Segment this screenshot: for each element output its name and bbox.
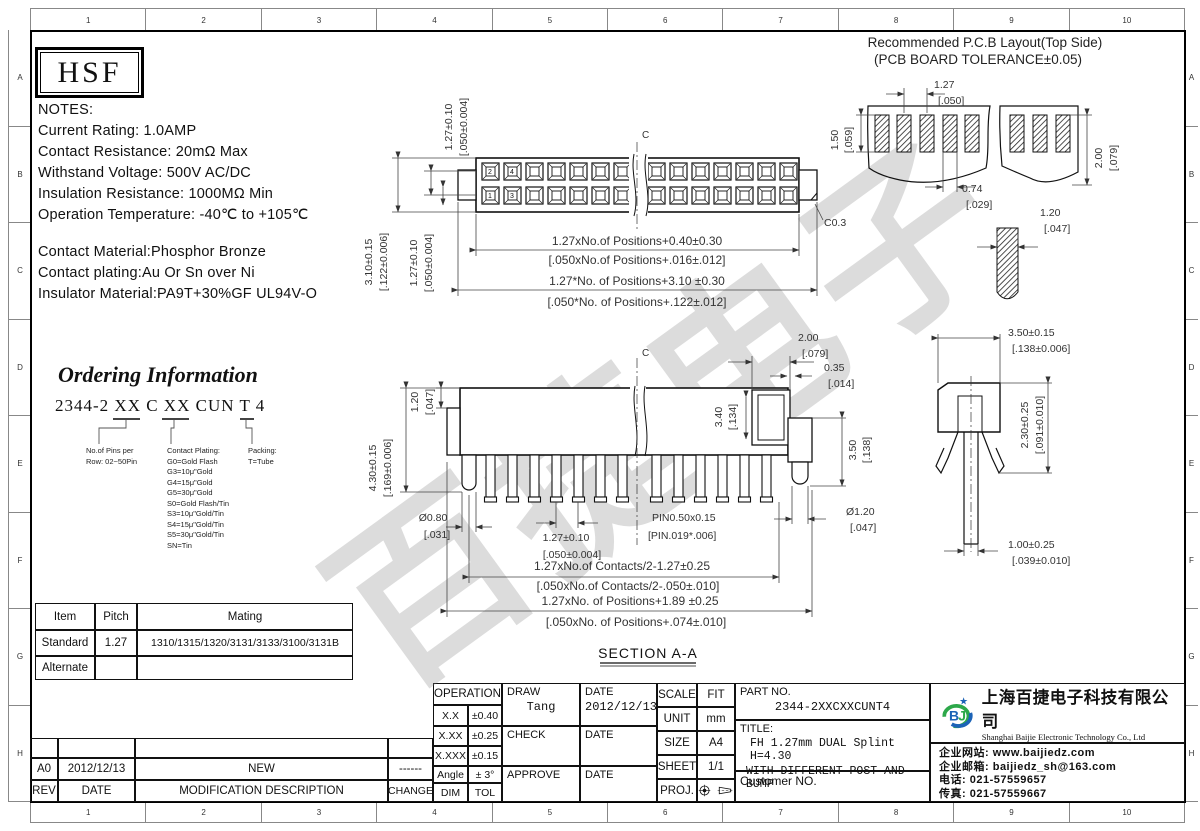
- unit-value: mm: [697, 707, 735, 731]
- ruler-left: ABCDEFGH: [8, 30, 31, 802]
- mating-pitch-value: 1.27: [95, 630, 137, 656]
- rev-desc-value: NEW: [135, 758, 388, 780]
- rev-header: REV: [30, 780, 58, 802]
- scale-label: SCALE: [657, 683, 697, 707]
- approve-label: APPROVE: [507, 769, 560, 781]
- ruler-label: 8: [839, 9, 954, 31]
- ruler-label: A: [1185, 30, 1198, 127]
- ordering-plating-list: Contact Plating: G0=Gold Flash G3=10μ"Go…: [167, 446, 257, 551]
- ruler-label: D: [9, 320, 31, 417]
- ruler-label: 6: [608, 9, 723, 31]
- check-cell: CHECK: [502, 726, 580, 766]
- ruler-label: 5: [493, 802, 608, 822]
- plating-option: G0=Gold Flash: [167, 457, 257, 468]
- mating-header-mating: Mating: [137, 603, 353, 630]
- tol-val: ±0.15: [468, 746, 502, 766]
- hsf-logo: HSF: [35, 47, 144, 98]
- company-contact: 企业网站: www.baijiedz.com 企业邮箱: baijiedz_sh…: [930, 743, 1185, 802]
- note-line: Operation Temperature: -40℃ to +105℃: [38, 205, 378, 226]
- plating-option: S4=15μ"Gold/Tin: [167, 520, 257, 531]
- ruler-label: H: [9, 706, 31, 803]
- company-header: ★ B J 上海百捷电子科技有限公司 Shanghai Baijie Elect…: [930, 683, 1185, 743]
- ruler-label: G: [1185, 609, 1198, 706]
- customer-no-cell: Customer NO.: [735, 771, 930, 802]
- operation-header: OPERATION: [433, 683, 502, 705]
- ordering-title: Ordering Information: [58, 362, 258, 388]
- rev-empty: [388, 738, 433, 758]
- company-name-cn: 上海百捷电子科技有限公司: [982, 684, 1180, 732]
- date-label: DATE: [585, 769, 614, 781]
- plating-option: G5=30μ"Gold: [167, 488, 257, 499]
- plating-heading: Contact Plating:: [167, 446, 257, 457]
- tol-val: ± 3°: [468, 766, 502, 783]
- plating-option: G3=10μ"Gold: [167, 467, 257, 478]
- plating-option: S0=Gold Flash/Tin: [167, 499, 257, 510]
- ruler-label: A: [9, 30, 31, 127]
- proj-symbol-cell: [697, 779, 735, 802]
- rev-empty: [135, 738, 388, 758]
- hsf-logo-border: [40, 52, 139, 93]
- ruler-label: F: [1185, 513, 1198, 610]
- ruler-label: 4: [377, 9, 492, 31]
- sheet-label: SHEET: [657, 755, 697, 779]
- ruler-label: F: [9, 513, 31, 610]
- plating-option: S5=30μ"Gold/Tin: [167, 530, 257, 541]
- approve-cell: APPROVE: [502, 766, 580, 802]
- company-fax: 传真: 021-57559667: [939, 788, 1176, 802]
- mating-alt-list: [137, 656, 353, 680]
- draw-date: 2012/12/13: [585, 700, 657, 714]
- code-underline: [162, 418, 189, 420]
- ordering-code: 2344-2 XX C XX CUN T 4: [55, 396, 265, 416]
- rev-date-value: 2012/12/13: [58, 758, 135, 780]
- proj-label: PROJ.: [657, 779, 697, 802]
- mating-list: 1310/1315/1320/3131/3133/3100/3131B: [137, 630, 353, 656]
- code-underline: [113, 418, 140, 420]
- part-no-value: 2344-2XXCXXCUNT4: [775, 700, 890, 714]
- ruler-label: C: [9, 223, 31, 320]
- ruler-label: 3: [262, 9, 377, 31]
- ruler-label: 1: [30, 802, 146, 822]
- ruler-label: E: [1185, 416, 1198, 513]
- sheet-value: 1/1: [697, 755, 735, 779]
- drawing-sheet: 12345678910 12345678910 ABCDEFGH ABCDEFG…: [0, 0, 1200, 831]
- tol-dim: X.XX: [433, 726, 468, 746]
- unit-label: UNIT: [657, 707, 697, 731]
- note-line: Withstand Voltage: 500V AC/DC: [38, 163, 378, 184]
- ruler-label: B: [9, 127, 31, 224]
- plating-option: S3=10μ"Gold/Tin: [167, 509, 257, 520]
- rev-change-value: ------: [388, 758, 433, 780]
- ordering-pins-label: No.of Pins per Row: 02~50Pin: [86, 446, 164, 467]
- ruler-label: E: [9, 416, 31, 513]
- draw-cell: DRAW Tang: [502, 683, 580, 726]
- draw-name: Tang: [527, 700, 556, 714]
- ruler-label: 8: [839, 802, 954, 822]
- rev-date-header: DATE: [58, 780, 135, 802]
- rev-change-header: CHANGE: [388, 780, 433, 802]
- notes-heading: NOTES:: [38, 100, 378, 121]
- approve-date-cell: DATE: [580, 766, 657, 802]
- company-logo: ★ B J: [935, 693, 978, 733]
- part-no-label: PART NO.: [740, 686, 791, 698]
- check-date-cell: DATE: [580, 726, 657, 766]
- ruler-label: 2: [146, 802, 261, 822]
- draw-label: DRAW: [507, 686, 540, 698]
- ruler-label: D: [1185, 320, 1198, 417]
- company-name-en: Shanghai Baijie Electronic Technology Co…: [982, 732, 1180, 742]
- size-value: A4: [697, 731, 735, 755]
- title-cell: TITLE: FH 1.27mm DUAL Splint H=4.30 WITH…: [735, 720, 930, 771]
- ordering-packing-label: Packing: T=Tube: [248, 446, 308, 467]
- mating-header-item: Item: [35, 603, 95, 630]
- mating-header-pitch: Pitch: [95, 603, 137, 630]
- ruler-label: G: [9, 609, 31, 706]
- rev-desc-header: MODIFICATION DESCRIPTION: [135, 780, 388, 802]
- tol-val: ±0.40: [468, 705, 502, 726]
- tol-dim: X.X: [433, 705, 468, 726]
- ruler-label: 10: [1070, 9, 1185, 31]
- scale-value: FIT: [697, 683, 735, 707]
- svg-text:J: J: [958, 707, 966, 723]
- plating-option: G4=15μ"Gold: [167, 478, 257, 489]
- title-label: TITLE:: [740, 723, 773, 735]
- ruler-label: 1: [30, 9, 146, 31]
- ruler-label: 7: [723, 802, 838, 822]
- ruler-label: 6: [608, 802, 723, 822]
- rev-empty: [58, 738, 135, 758]
- ruler-label: 9: [954, 9, 1069, 31]
- tol-dim: Angle: [433, 766, 468, 783]
- ruler-right: ABCDEFGH: [1185, 30, 1198, 802]
- ruler-label: 5: [493, 9, 608, 31]
- check-label: CHECK: [507, 729, 546, 741]
- tol-val: ±0.25: [468, 726, 502, 746]
- ruler-label: 4: [377, 802, 492, 822]
- projection-symbol-icon: [698, 783, 734, 798]
- rev-empty: [30, 738, 58, 758]
- draw-date-cell: DATE 2012/12/13: [580, 683, 657, 726]
- note-line: Contact Resistance: 20mΩ Max: [38, 142, 378, 163]
- company-email: 企业邮箱: baijiedz_sh@163.com: [939, 761, 1176, 775]
- material-line: Contact Material:Phosphor Bronze: [38, 242, 378, 263]
- part-no-cell: PART NO. 2344-2XXCXXCUNT4: [735, 683, 930, 720]
- ruler-label: 7: [723, 9, 838, 31]
- mating-standard: Standard: [35, 630, 95, 656]
- ruler-bottom: 12345678910: [30, 802, 1185, 823]
- company-tel: 电话: 021-57559657: [939, 774, 1176, 788]
- drawing-title-line1: FH 1.27mm DUAL Splint H=4.30: [750, 737, 925, 763]
- material-line: Insulator Material:PA9T+30%GF UL94V-O: [38, 284, 378, 305]
- tol-tol-header: TOL: [468, 783, 502, 802]
- mating-alt-pitch: [95, 656, 137, 680]
- ruler-label: C: [1185, 223, 1198, 320]
- plating-option: SN=Tin: [167, 541, 257, 552]
- code-underline: [240, 418, 254, 420]
- material-line: Contact plating:Au Or Sn over Ni: [38, 263, 378, 284]
- ruler-top: 12345678910: [30, 8, 1185, 31]
- ruler-label: 9: [954, 802, 1069, 822]
- mating-alternate: Alternate: [35, 656, 95, 680]
- note-line: Insulation Resistance: 1000MΩ Min: [38, 184, 378, 205]
- notes-block: NOTES: Current Rating: 1.0AMP Contact Re…: [38, 100, 378, 305]
- ruler-label: 2: [146, 9, 261, 31]
- ruler-label: B: [1185, 127, 1198, 224]
- note-line: Current Rating: 1.0AMP: [38, 121, 378, 142]
- rev-value: A0: [30, 758, 58, 780]
- size-label: SIZE: [657, 731, 697, 755]
- company-website: 企业网站: www.baijiedz.com: [939, 747, 1176, 761]
- date-label: DATE: [585, 686, 614, 698]
- ruler-label: 3: [262, 802, 377, 822]
- ruler-label: H: [1185, 706, 1198, 803]
- date-label: DATE: [585, 729, 614, 741]
- tol-dim-header: DIM: [433, 783, 468, 802]
- tol-dim: X.XXX: [433, 746, 468, 766]
- customer-no-label: Customer NO.: [740, 774, 817, 788]
- ruler-label: 10: [1070, 802, 1185, 822]
